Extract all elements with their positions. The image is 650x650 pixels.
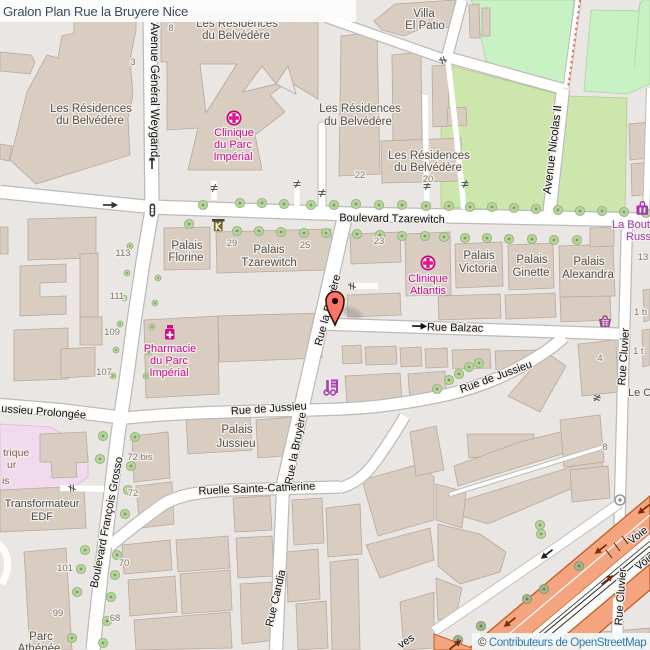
svg-text:99: 99 xyxy=(53,608,64,619)
svg-text:Florine: Florine xyxy=(168,252,203,264)
svg-text:Villa: Villa xyxy=(413,8,435,20)
svg-text:Pharmacie: Pharmacie xyxy=(144,343,197,355)
svg-text:is: is xyxy=(2,475,10,487)
svg-text:Les Résidences: Les Résidences xyxy=(50,103,132,115)
svg-text:3: 3 xyxy=(130,57,135,68)
svg-text:Parc: Parc xyxy=(29,631,53,643)
svg-text:Impérial: Impérial xyxy=(149,367,188,379)
svg-text:Gralon Plan Rue la Bruyere Nic: Gralon Plan Rue la Bruyere Nice xyxy=(3,4,188,19)
svg-text:72 bis: 72 bis xyxy=(127,452,153,463)
svg-text:Palais: Palais xyxy=(463,250,495,262)
svg-text:Ginette: Ginette xyxy=(512,267,549,279)
svg-text:Rue Balzac: Rue Balzac xyxy=(427,321,484,334)
svg-text:Palais: Palais xyxy=(573,256,605,268)
svg-text:El Patio: El Patio xyxy=(405,20,445,32)
svg-text:113: 113 xyxy=(115,248,130,259)
svg-text:107: 107 xyxy=(96,367,112,378)
svg-text:1 b: 1 b xyxy=(634,307,647,318)
svg-text:Transformateur: Transformateur xyxy=(5,498,80,510)
svg-text:du Parc: du Parc xyxy=(214,139,252,151)
svg-text:Victoria: Victoria xyxy=(459,263,498,275)
svg-text:Boulevard Tzarewitch: Boulevard Tzarewitch xyxy=(339,212,445,226)
svg-text:72: 72 xyxy=(128,488,139,499)
svg-text:20: 20 xyxy=(423,174,434,185)
svg-text:4: 4 xyxy=(597,353,602,364)
svg-text:68: 68 xyxy=(110,613,121,624)
svg-text:Le Cl: Le Cl xyxy=(628,387,650,399)
svg-text:trique: trique xyxy=(3,447,29,459)
svg-text:Palais: Palais xyxy=(516,254,548,266)
svg-text:Avenue Général Weygand: Avenue Général Weygand xyxy=(148,23,160,157)
svg-text:Alexandra: Alexandra xyxy=(562,269,614,281)
svg-text:© Contributeurs de OpenStreetM: © Contributeurs de OpenStreetMap xyxy=(478,637,646,649)
svg-text:23: 23 xyxy=(374,236,385,247)
svg-text:du Belvédère: du Belvédère xyxy=(56,115,124,127)
svg-text:La Boutique: La Boutique xyxy=(612,219,650,231)
svg-text:du Belvédère: du Belvédère xyxy=(324,116,392,128)
svg-text:8: 8 xyxy=(602,442,607,453)
svg-text:Palais: Palais xyxy=(253,244,285,256)
svg-text:du Belvédère: du Belvédère xyxy=(202,30,270,42)
svg-text:25: 25 xyxy=(300,240,311,251)
svg-text:Palais: Palais xyxy=(221,424,253,436)
svg-text:109: 109 xyxy=(104,327,120,338)
svg-text:du Belvédère: du Belvédère xyxy=(394,162,462,174)
svg-text:22: 22 xyxy=(355,170,366,181)
svg-text:Les Résidences: Les Résidences xyxy=(319,103,401,115)
svg-text:111: 111 xyxy=(110,291,124,302)
svg-text:Russe: Russe xyxy=(626,231,650,243)
svg-text:8: 8 xyxy=(168,23,173,34)
svg-text:Tzarewitch: Tzarewitch xyxy=(241,257,297,269)
svg-text:du Parc: du Parc xyxy=(150,355,188,367)
svg-text:Atlantis: Atlantis xyxy=(410,285,447,297)
svg-text:Clinique: Clinique xyxy=(408,273,448,285)
svg-text:13: 13 xyxy=(638,252,649,263)
svg-text:70: 70 xyxy=(119,558,130,569)
svg-text:29: 29 xyxy=(227,238,238,249)
svg-text:ur: ur xyxy=(7,459,17,471)
svg-text:1 t: 1 t xyxy=(633,346,644,357)
svg-text:Impérial: Impérial xyxy=(213,151,252,163)
svg-text:Athénée: Athénée xyxy=(18,643,61,650)
svg-text:EDF: EDF xyxy=(31,511,53,523)
svg-text:Les Résidences: Les Résidences xyxy=(388,150,470,162)
svg-text:Palais: Palais xyxy=(171,240,203,252)
svg-text:101: 101 xyxy=(57,563,73,574)
svg-text:Clinique: Clinique xyxy=(214,127,254,139)
svg-text:Jussieu: Jussieu xyxy=(217,438,256,450)
